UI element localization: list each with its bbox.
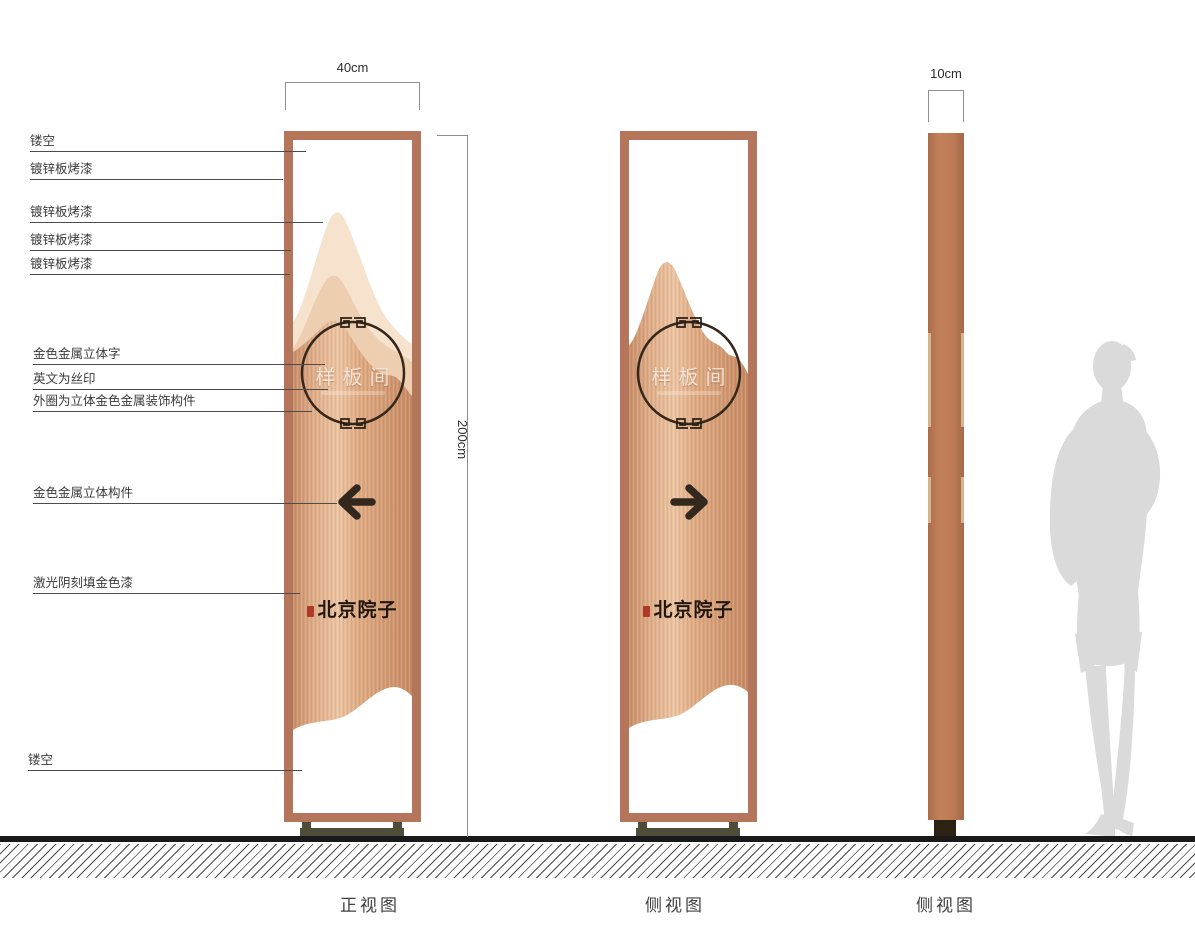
slab-edge-accent (928, 477, 931, 523)
human-scale-silhouette (1015, 336, 1180, 839)
callout-laser-engraved: 激光阴刻填金色漆 (33, 576, 300, 594)
callout-hollow-top: 镂空 (30, 134, 306, 152)
callout-label: 镂空 (28, 753, 53, 767)
caption-front-view: 正视图 (300, 891, 440, 916)
red-seal-stamp-icon (307, 606, 314, 617)
callout-label: 金色金属立体构件 (33, 486, 133, 500)
red-seal-stamp-icon (643, 606, 650, 617)
mountain-artwork (293, 140, 412, 813)
front-view-panel: 样板间 北京院子 (284, 131, 421, 822)
width-dimension-tick (285, 82, 286, 110)
callout-label: 镀锌板烤漆 (30, 233, 93, 247)
callout-galvanized-4: 镀锌板烤漆 (30, 257, 290, 275)
depth-dimension-line (928, 90, 964, 91)
room-name-text: 样板间 (629, 361, 748, 390)
brand-calligraphy: 北京院子 (293, 595, 412, 622)
callout-gold-letters: 金色金属立体字 (33, 347, 325, 365)
back-view-panel: 样板间 北京院子 (620, 131, 757, 822)
ground-line (0, 836, 1195, 842)
callout-silkscreen: 英文为丝印 (33, 372, 328, 390)
callout-label: 镀锌板烤漆 (30, 162, 93, 176)
slab-edge-accent (961, 333, 964, 427)
height-dimension-label: 200cm (455, 420, 470, 459)
signage-construction-drawing: 镂空 镀锌板烤漆 镀锌板烤漆 镀锌板烤漆 镀锌板烤漆 金色金属立体字 英文为丝印… (0, 0, 1195, 927)
callout-label: 英文为丝印 (33, 372, 96, 386)
width-dimension-label: 40cm (285, 60, 420, 75)
callout-galvanized-2: 镀锌板烤漆 (30, 205, 323, 223)
front-panel-face: 样板间 北京院子 (293, 140, 412, 813)
side-view-slab (928, 133, 964, 820)
silkscreen-english-text (657, 391, 721, 395)
height-dimension-line (467, 135, 468, 837)
brand-text: 北京院子 (653, 599, 733, 621)
callout-galvanized-3: 镀锌板烤漆 (30, 233, 291, 251)
slab-edge-accent (961, 477, 964, 523)
callout-label: 镀锌板烤漆 (30, 257, 93, 271)
ground-hatch (0, 844, 1195, 878)
callout-hollow-bottom: 镂空 (28, 753, 302, 771)
arrow-left-icon (332, 483, 378, 521)
caption-side-view: 侧视图 (876, 891, 1016, 916)
arrow-right-icon (668, 483, 714, 521)
callout-ring-ornament: 外圈为立体金色金属装饰构件 (33, 394, 312, 412)
depth-dimension-tick (963, 90, 964, 122)
silkscreen-english-text (321, 391, 385, 395)
callout-label: 镀锌板烤漆 (30, 205, 93, 219)
height-dimension-tick (437, 135, 467, 136)
depth-dimension-label: 10cm (921, 66, 971, 81)
width-dimension-tick (419, 82, 420, 110)
callout-label: 外圈为立体金色金属装饰构件 (33, 394, 196, 408)
brand-calligraphy: 北京院子 (629, 595, 748, 622)
callout-label: 激光阴刻填金色漆 (33, 576, 133, 590)
caption-back-view: 侧视图 (605, 891, 745, 916)
back-panel-face: 样板间 北京院子 (629, 140, 748, 813)
slab-edge-accent (928, 333, 931, 427)
brand-text: 北京院子 (317, 599, 397, 621)
callout-label: 金色金属立体字 (33, 347, 121, 361)
width-dimension-line (285, 82, 420, 83)
callout-galvanized-1: 镀锌板烤漆 (30, 162, 283, 180)
depth-dimension-tick (928, 90, 929, 122)
callout-label: 镂空 (30, 134, 55, 148)
callout-gold-component: 金色金属立体构件 (33, 486, 337, 504)
mountain-artwork (629, 140, 748, 813)
